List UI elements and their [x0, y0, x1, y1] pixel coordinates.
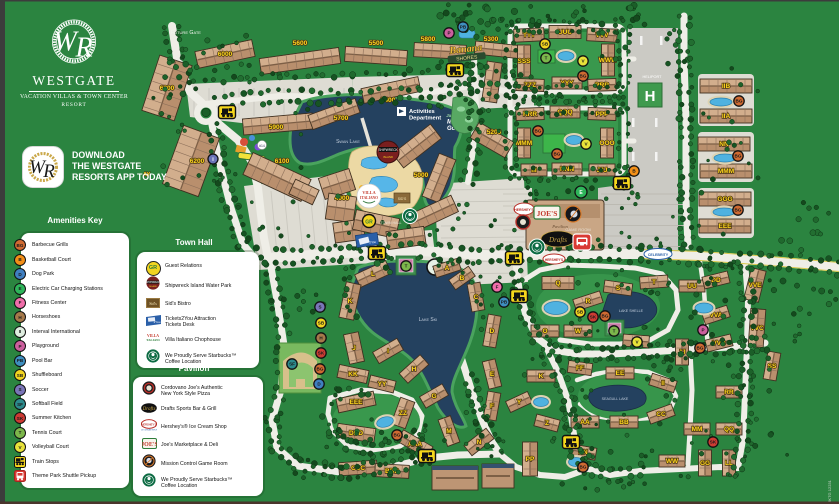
svg-text:S: S: [318, 305, 321, 310]
svg-text:ISLAND: ISLAND: [383, 155, 393, 159]
svg-text:R: R: [74, 33, 92, 64]
svg-text:SK: SK: [318, 351, 325, 356]
svg-text:JOE'S: JOE'S: [142, 442, 157, 448]
svg-text:T: T: [405, 264, 408, 269]
svg-text:R: R: [42, 161, 55, 182]
svg-text:Drafts: Drafts: [548, 236, 567, 244]
svg-text:D: D: [490, 328, 495, 335]
svg-text:UU: UU: [687, 283, 697, 290]
svg-text:II: II: [661, 380, 665, 387]
svg-text:N: N: [477, 439, 482, 446]
svg-text:A: A: [445, 265, 450, 272]
svg-text:YY: YY: [378, 381, 387, 388]
svg-text:GG: GG: [700, 460, 710, 467]
svg-text:SSS: SSS: [517, 58, 531, 65]
svg-text:BG: BG: [736, 99, 743, 104]
svg-text:SEAGULL LAKE: SEAGULL LAKE: [602, 397, 629, 401]
svg-text:PB: PB: [460, 25, 467, 30]
svg-text:BG: BG: [580, 465, 587, 470]
svg-text:6200: 6200: [190, 158, 205, 165]
svg-text:T: T: [613, 329, 616, 334]
svg-text:BB: BB: [619, 419, 629, 426]
svg-text:ITALIANO: ITALIANO: [360, 196, 378, 200]
svg-text:M: M: [446, 428, 451, 435]
svg-text:P: P: [701, 328, 704, 333]
svg-text:QQ: QQ: [724, 426, 734, 433]
svg-text:MM: MM: [692, 426, 703, 433]
svg-text:BG: BG: [317, 367, 324, 372]
svg-text:J: J: [352, 345, 356, 352]
svg-text:HERSHEY'S: HERSHEY'S: [545, 258, 563, 262]
svg-text:T: T: [652, 279, 656, 286]
svg-text:5700: 5700: [334, 115, 349, 122]
svg-text:5800: 5800: [421, 36, 436, 43]
svg-text:MKTG 12231: MKTG 12231: [827, 479, 832, 504]
svg-text:ISLAND: ISLAND: [149, 285, 157, 288]
svg-text:GAME ROOM: GAME ROOM: [565, 227, 590, 232]
svg-text:BG: BG: [394, 433, 401, 438]
svg-text:SF: SF: [289, 362, 295, 367]
svg-text:T: T: [545, 56, 548, 61]
svg-text:6100: 6100: [275, 158, 290, 165]
svg-text:Department: Department: [409, 116, 441, 122]
svg-text:SB: SB: [577, 310, 584, 315]
svg-text:SHIPWRECK: SHIPWRECK: [378, 148, 398, 152]
svg-text:Z: Z: [545, 420, 549, 427]
svg-text:E: E: [490, 371, 495, 378]
svg-text:Activities: Activities: [409, 109, 435, 115]
svg-text:UUU: UUU: [558, 29, 572, 36]
svg-text:Y: Y: [517, 399, 522, 406]
svg-text:JOE'S: JOE'S: [537, 209, 558, 218]
svg-text:W: W: [575, 328, 582, 335]
svg-text:MMM: MMM: [718, 168, 734, 175]
svg-text:SID'S: SID'S: [398, 197, 407, 201]
svg-text:HERSHEY'S: HERSHEY'S: [142, 422, 157, 426]
svg-text:FF: FF: [576, 365, 584, 372]
svg-text:P: P: [447, 31, 450, 36]
svg-text:BG: BG: [697, 346, 704, 351]
svg-text:EEE: EEE: [349, 399, 363, 406]
svg-text:Sid's: Sid's: [149, 301, 157, 306]
svg-text:5300: 5300: [484, 36, 499, 43]
svg-text:CELEBRITY: CELEBRITY: [648, 253, 669, 257]
svg-text:EE: EE: [616, 370, 625, 377]
svg-text:G: G: [431, 393, 436, 400]
svg-text:5600: 5600: [293, 40, 308, 47]
svg-text:SHIPWRECK: SHIPWRECK: [146, 281, 160, 284]
svg-text:TOWN HALL: TOWN HALL: [381, 221, 402, 225]
svg-text:KK: KK: [348, 371, 358, 378]
svg-text:HELIPORT: HELIPORT: [643, 75, 663, 79]
svg-text:CC: CC: [656, 411, 666, 418]
svg-text:5900: 5900: [269, 124, 284, 131]
svg-text:Drafts: Drafts: [142, 407, 156, 412]
svg-text:ZZ: ZZ: [399, 410, 407, 417]
svg-text:H: H: [645, 88, 656, 105]
svg-text:#14: #14: [259, 144, 265, 148]
svg-text:SK: SK: [710, 440, 717, 445]
svg-text:IIB: IIB: [722, 83, 731, 90]
svg-text:ITALIANO: ITALIANO: [146, 338, 160, 342]
svg-text:PP: PP: [526, 456, 535, 463]
svg-text:O: O: [542, 328, 547, 335]
svg-text:F: F: [496, 285, 499, 290]
svg-text:H: H: [412, 366, 417, 373]
svg-text:AA: AA: [580, 419, 590, 426]
svg-text:GGG: GGG: [717, 196, 732, 203]
svg-text:SB: SB: [542, 42, 549, 47]
svg-text:VILLA: VILLA: [362, 190, 375, 195]
svg-text:K: K: [539, 373, 544, 380]
svg-text:VVE: VVE: [748, 282, 762, 289]
svg-text:ICE CREAM SHOP: ICE CREAM SHOP: [141, 428, 157, 431]
svg-text:BG: BG: [535, 129, 542, 134]
svg-text:5000: 5000: [414, 172, 429, 179]
svg-text:EEE: EEE: [718, 223, 732, 230]
svg-text:MMM: MMM: [516, 140, 532, 147]
svg-text:SB: SB: [318, 321, 325, 326]
svg-text:R: R: [586, 298, 591, 305]
svg-text:F: F: [490, 403, 494, 410]
svg-text:L: L: [371, 271, 375, 278]
svg-text:BG: BG: [554, 152, 561, 157]
svg-text:K: K: [348, 298, 353, 305]
svg-text:OOO: OOO: [599, 140, 614, 147]
svg-text:5500: 5500: [369, 40, 384, 47]
svg-text:IIA: IIA: [722, 113, 731, 120]
svg-text:BG: BG: [735, 208, 742, 213]
svg-text:PB: PB: [501, 300, 508, 305]
svg-text:B: B: [460, 275, 465, 282]
svg-text:BG: BG: [580, 74, 587, 79]
svg-text:Q: Q: [555, 280, 560, 287]
svg-text:BG: BG: [602, 314, 609, 319]
svg-text:SK: SK: [590, 315, 597, 320]
svg-text:RR: RR: [724, 389, 734, 396]
svg-text:GR: GR: [365, 220, 373, 226]
svg-text:HERSHEY'S: HERSHEY'S: [514, 208, 534, 212]
svg-text:WW: WW: [666, 458, 679, 465]
svg-text:LAKE SHELLE: LAKE SHELLE: [619, 309, 644, 313]
svg-text:I: I: [387, 348, 389, 355]
svg-text:6000: 6000: [218, 51, 233, 58]
svg-text:2You: 2You: [153, 320, 160, 324]
svg-text:BG: BG: [735, 154, 742, 159]
